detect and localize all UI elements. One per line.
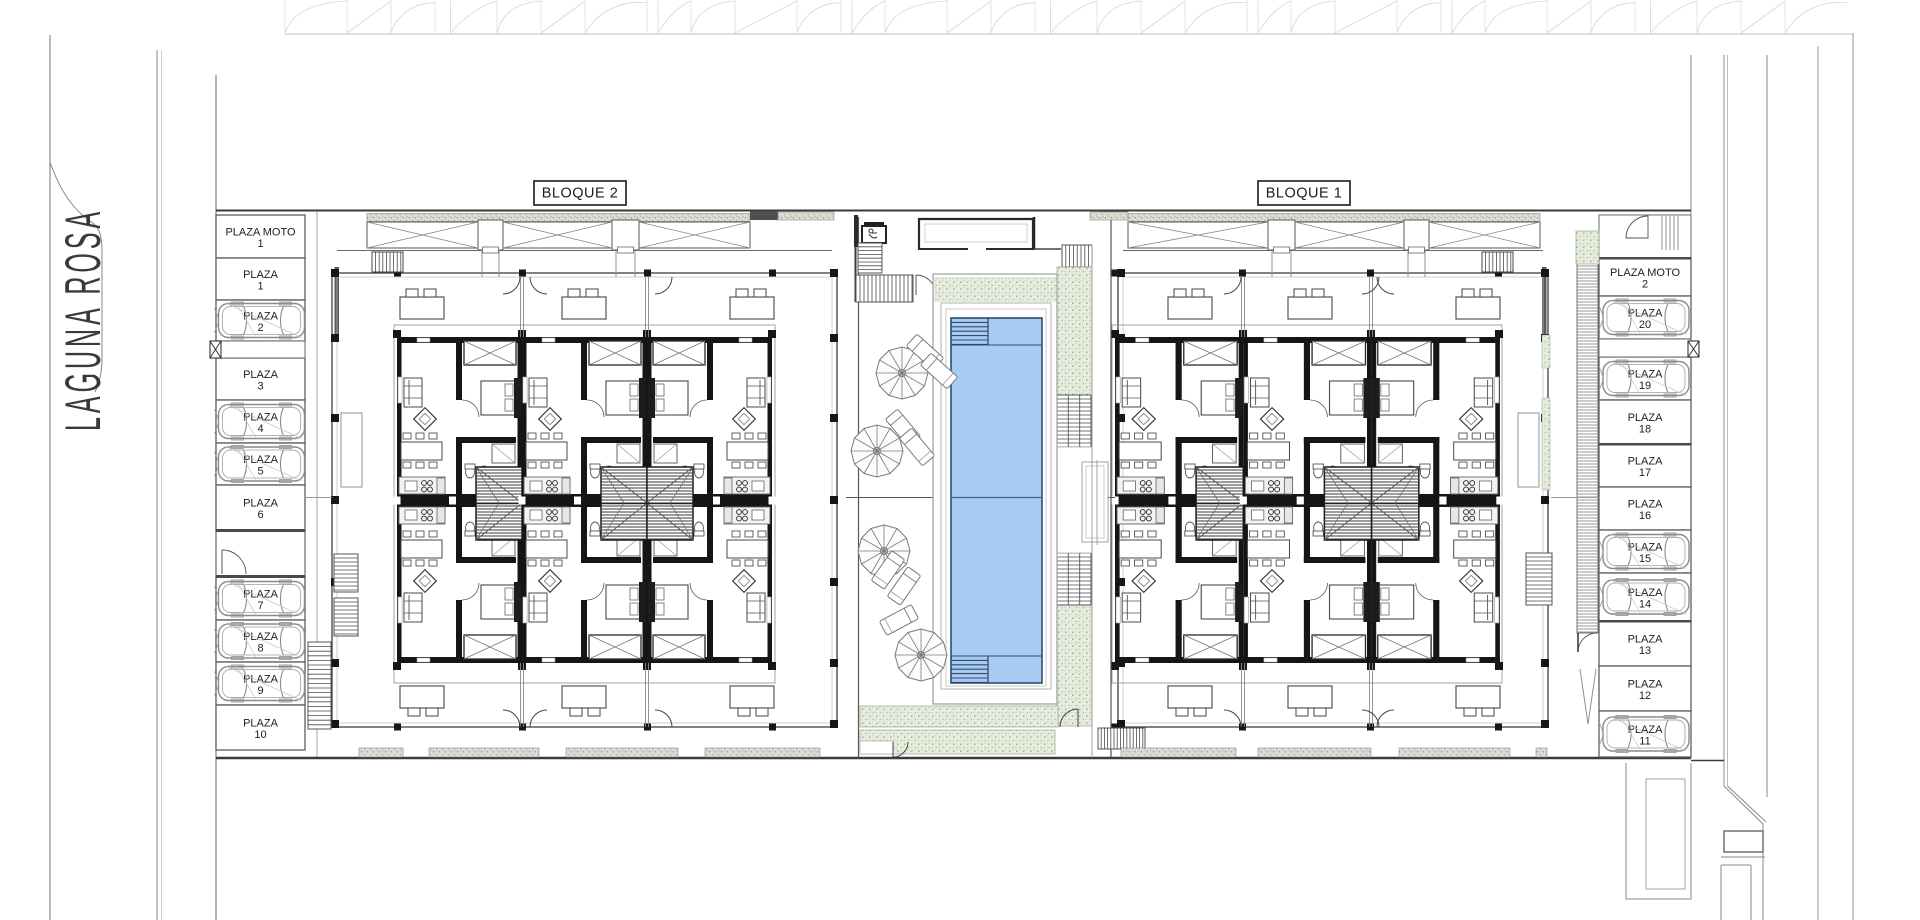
svg-text:15: 15 — [1639, 553, 1651, 565]
svg-text:PLAZA: PLAZA — [243, 718, 279, 730]
svg-text:19: 19 — [1639, 380, 1651, 392]
svg-text:5: 5 — [257, 466, 263, 478]
svg-text:9: 9 — [257, 685, 263, 697]
svg-text:4: 4 — [257, 423, 263, 435]
svg-text:2: 2 — [257, 322, 263, 334]
svg-text:PLAZA: PLAZA — [1628, 456, 1664, 468]
svg-text:PLAZA MOTO: PLAZA MOTO — [1610, 267, 1681, 279]
svg-text:PLAZA: PLAZA — [243, 631, 279, 643]
svg-text:PLAZA: PLAZA — [1628, 369, 1664, 381]
svg-text:18: 18 — [1639, 424, 1651, 436]
svg-text:PLAZA: PLAZA — [243, 589, 279, 601]
svg-text:11: 11 — [1639, 736, 1650, 748]
svg-text:PLAZA: PLAZA — [1628, 412, 1664, 424]
svg-text:10: 10 — [254, 729, 266, 741]
svg-text:PLAZA: PLAZA — [1628, 542, 1664, 554]
svg-text:PLAZA MOTO: PLAZA MOTO — [225, 227, 296, 239]
svg-text:PLAZA: PLAZA — [243, 269, 279, 281]
svg-text:1: 1 — [257, 281, 263, 293]
svg-text:PLAZA: PLAZA — [1628, 724, 1664, 736]
svg-text:PLAZA: PLAZA — [243, 412, 279, 424]
svg-text:BLOQUE 2: BLOQUE 2 — [542, 186, 619, 202]
svg-text:PLAZA: PLAZA — [243, 369, 279, 381]
svg-text:7: 7 — [257, 600, 263, 612]
svg-text:PLAZA: PLAZA — [1628, 634, 1664, 646]
svg-text:LAGUNA ROSA: LAGUNA ROSA — [56, 208, 112, 431]
svg-text:PLAZA: PLAZA — [243, 311, 279, 323]
svg-text:14: 14 — [1639, 599, 1651, 611]
svg-text:2: 2 — [1642, 279, 1648, 291]
svg-text:13: 13 — [1639, 645, 1651, 657]
svg-text:12: 12 — [1639, 690, 1651, 702]
svg-text:PLAZA: PLAZA — [1628, 499, 1664, 511]
svg-text:6: 6 — [257, 509, 263, 521]
svg-text:BLOQUE 1: BLOQUE 1 — [1266, 186, 1343, 202]
svg-text:16: 16 — [1639, 510, 1651, 522]
svg-text:20: 20 — [1639, 319, 1651, 331]
svg-text:1: 1 — [257, 238, 263, 250]
svg-text:PLAZA: PLAZA — [243, 454, 279, 466]
svg-text:3: 3 — [257, 381, 263, 393]
svg-text:8: 8 — [257, 643, 263, 655]
svg-text:PLAZA: PLAZA — [243, 498, 279, 510]
svg-text:PLAZA: PLAZA — [1628, 308, 1664, 320]
svg-text:PLAZA: PLAZA — [1628, 679, 1664, 691]
svg-text:17: 17 — [1639, 467, 1651, 479]
svg-text:PLAZA: PLAZA — [243, 674, 279, 686]
svg-text:PLAZA: PLAZA — [1628, 587, 1664, 599]
